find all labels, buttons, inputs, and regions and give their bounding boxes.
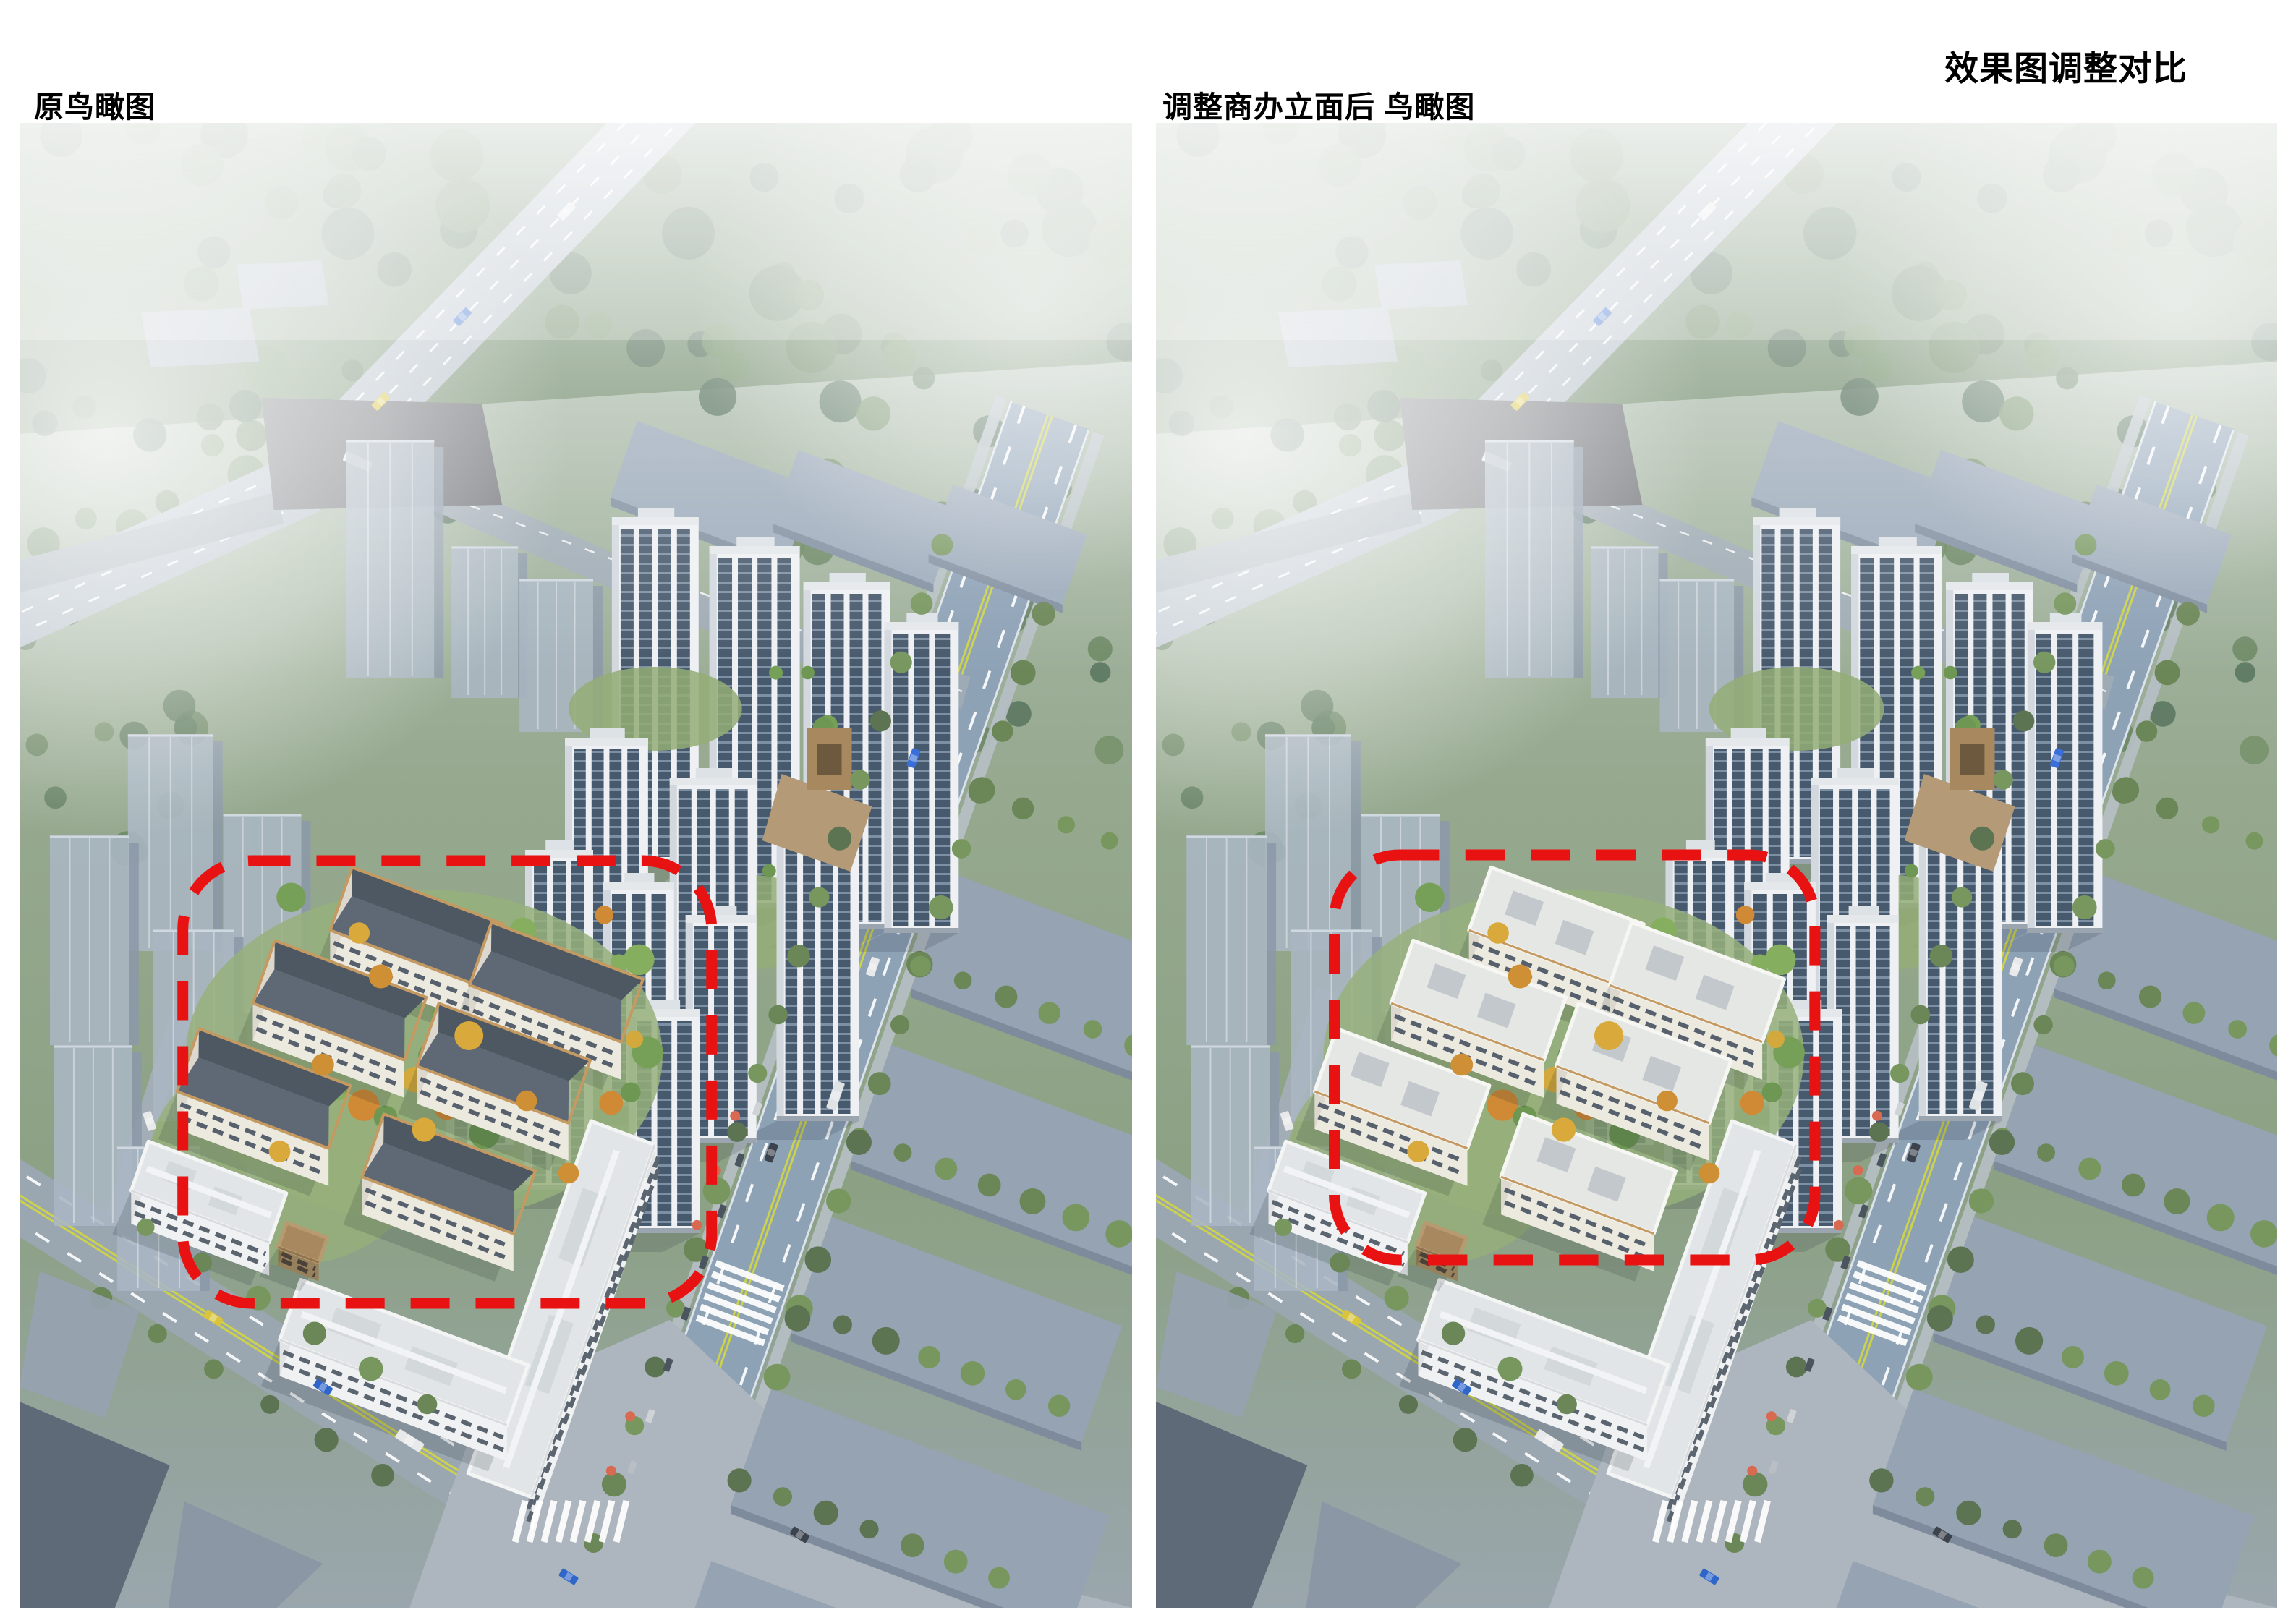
page-title: 效果图调整对比: [1944, 41, 2187, 90]
aerial-render-original: [20, 123, 1132, 1608]
panel-label-original: 原鸟瞰图: [34, 82, 156, 126]
aerial-render-adjusted: [1156, 123, 2277, 1608]
panel-label-adjusted: 调整商办立面后 鸟瞰图: [1162, 82, 1475, 126]
